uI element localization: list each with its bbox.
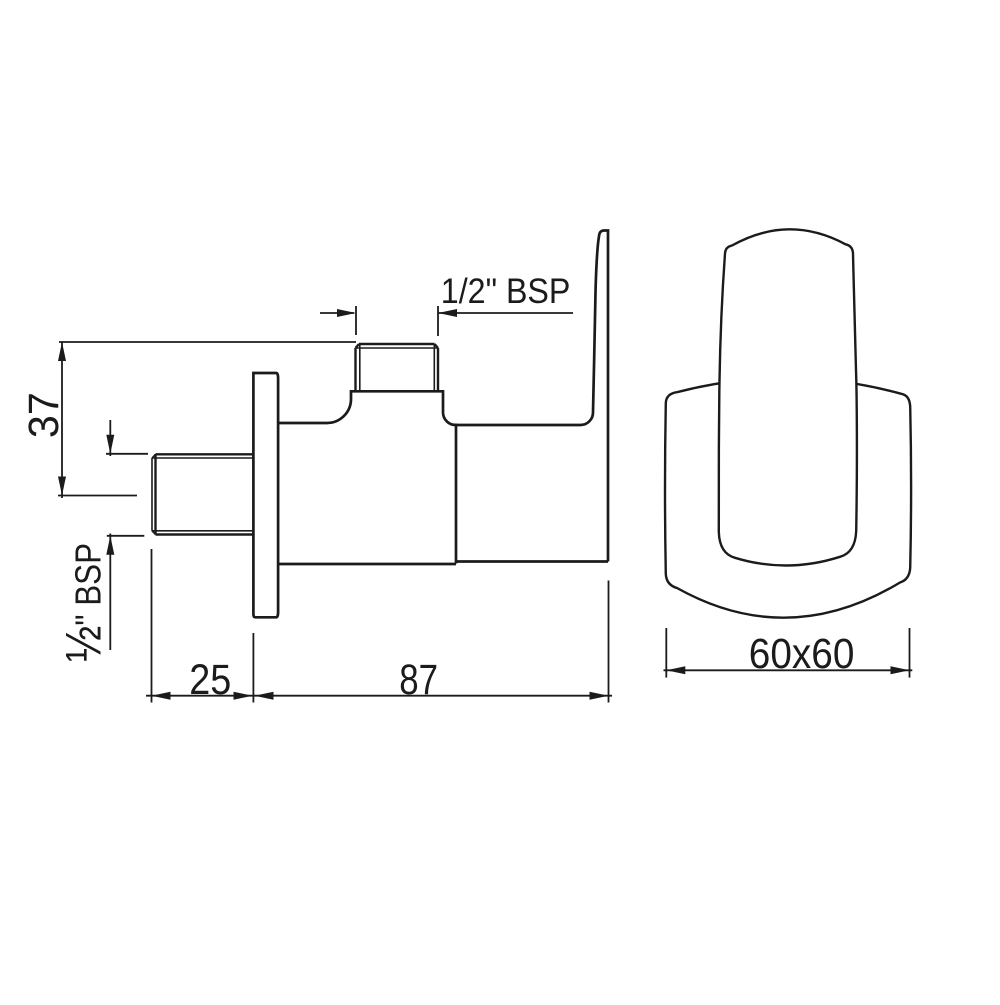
svg-text:60x60: 60x60 xyxy=(749,631,855,678)
svg-text:87: 87 xyxy=(399,657,438,704)
svg-text:37: 37 xyxy=(21,392,68,438)
svg-text:½" BSP: ½" BSP xyxy=(56,543,112,662)
svg-text:1/2" BSP: 1/2" BSP xyxy=(441,271,571,311)
svg-text:25: 25 xyxy=(189,657,231,704)
